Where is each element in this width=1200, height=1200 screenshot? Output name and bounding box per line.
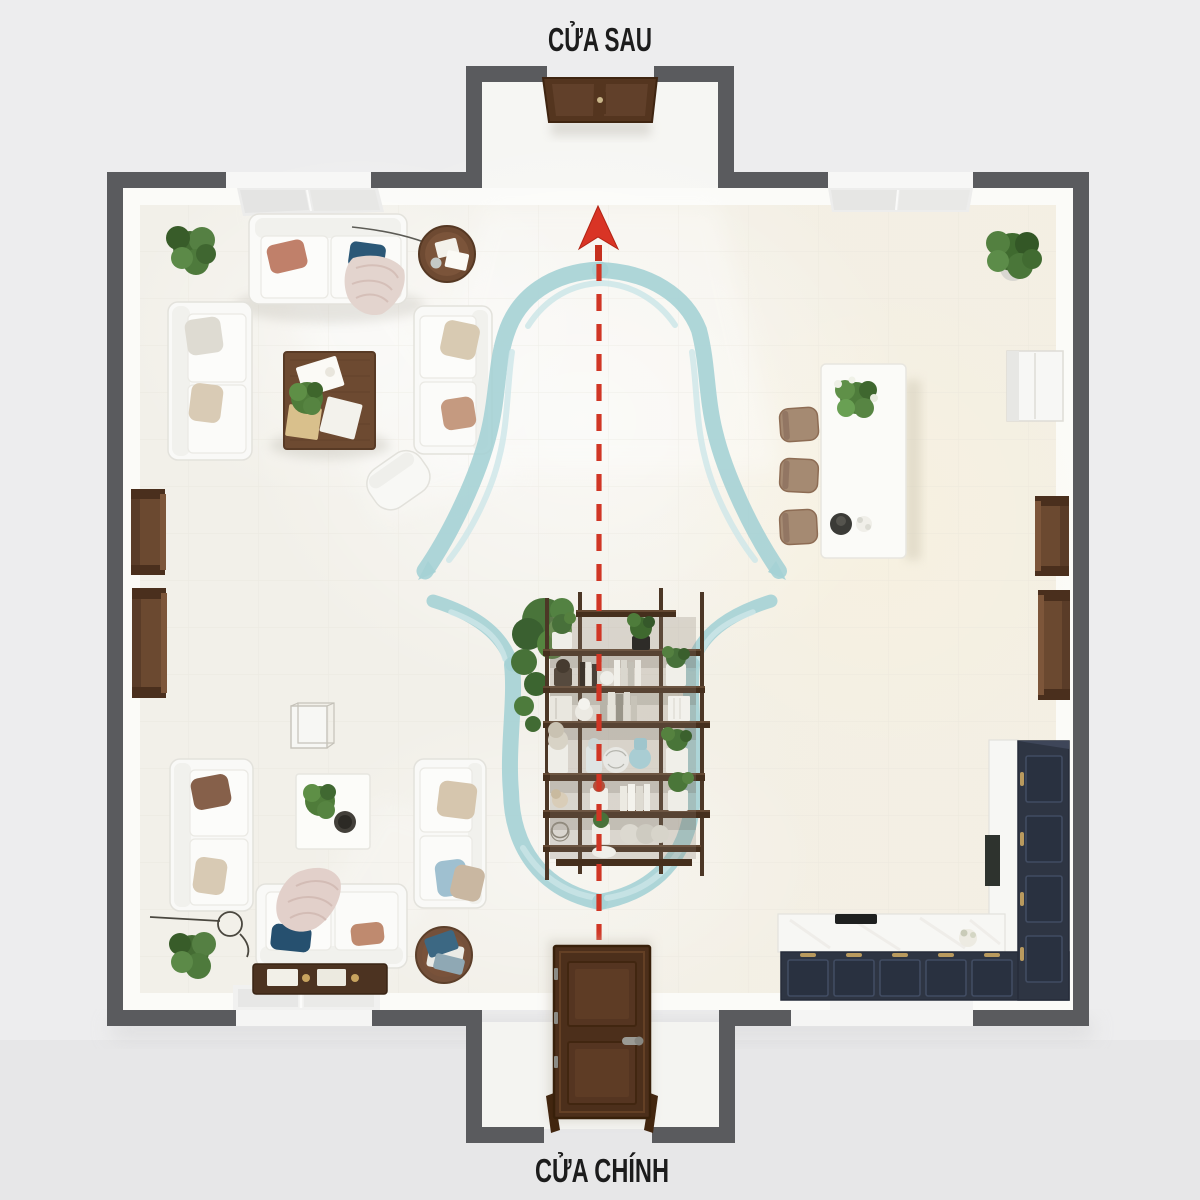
svg-text:CỬA CHÍNH: CỬA CHÍNH <box>535 1152 669 1189</box>
svg-text:CỬA SAU: CỬA SAU <box>548 21 652 58</box>
